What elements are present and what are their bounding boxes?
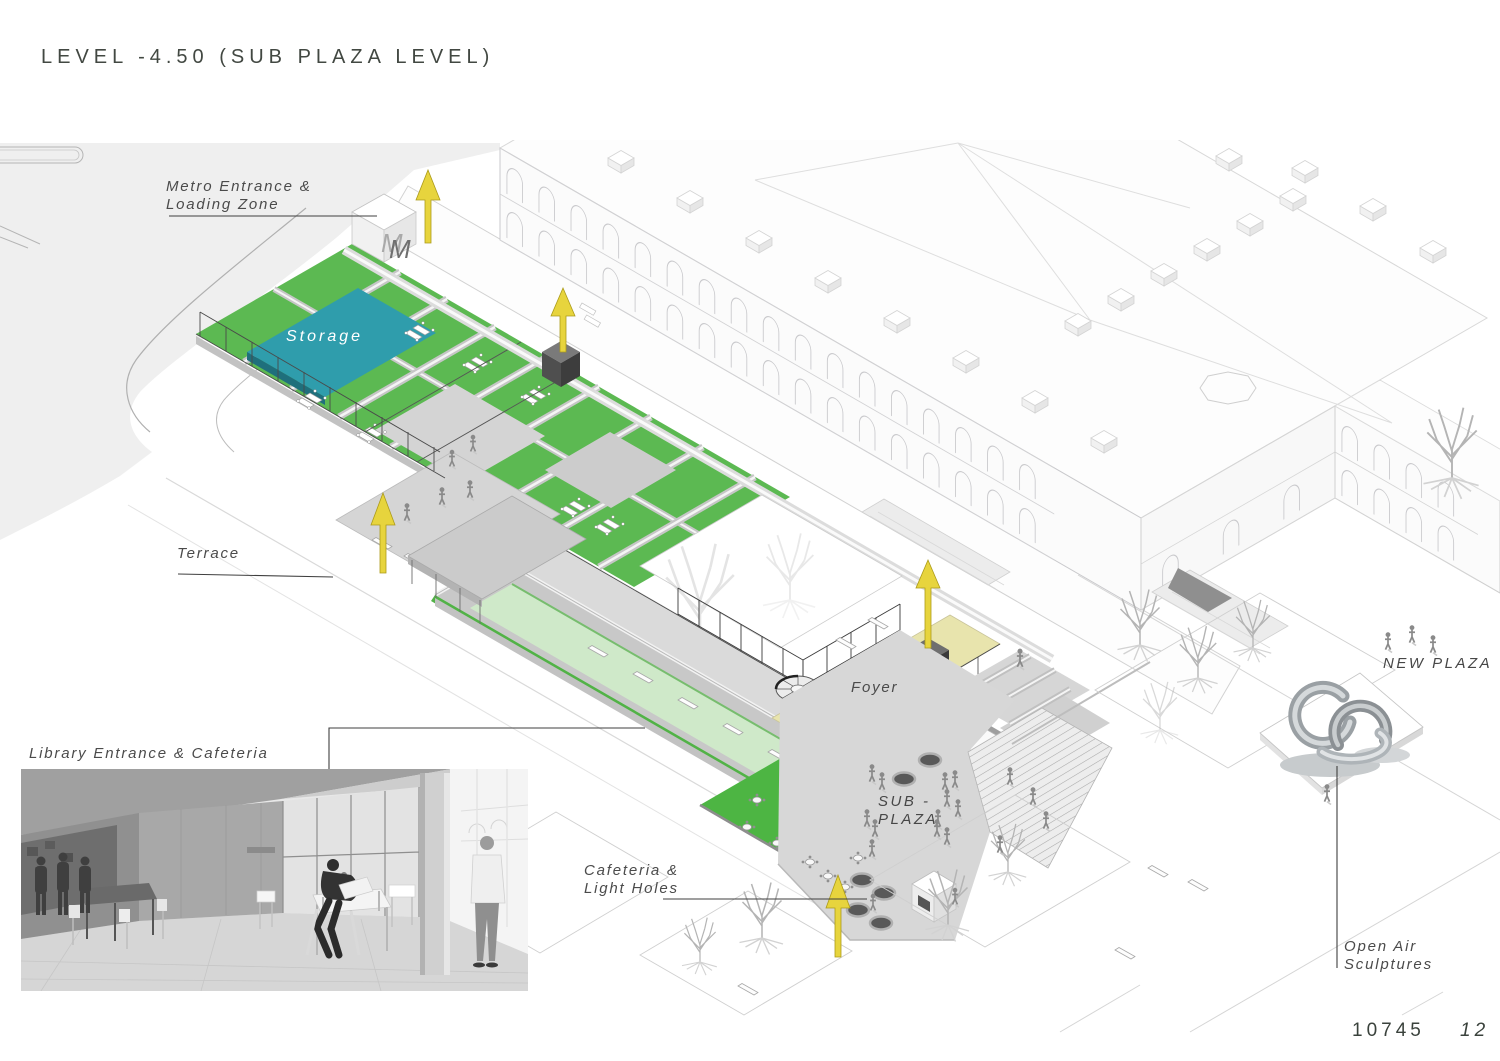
leader-terrace: [178, 574, 333, 577]
presentation-board: MAT M M: [0, 0, 1500, 1061]
label-library-entrance: Library Entrance & Cafeteria: [29, 745, 269, 763]
label-storage: Storage: [286, 328, 363, 346]
library-photo-illustration: [21, 769, 528, 991]
label-sub-plaza: SUB - PLAZA: [878, 793, 938, 829]
entry-code: 10745: [1352, 1020, 1425, 1042]
leader-library: [329, 728, 645, 769]
metro-logo-front: M: [389, 234, 411, 264]
label-terrace: Terrace: [177, 545, 240, 563]
library-entrance-photo: [21, 769, 528, 991]
photo-column: [420, 773, 450, 975]
sheet-number: 12: [1460, 1020, 1489, 1042]
page-title: LEVEL -4.50 (SUB PLAZA LEVEL): [41, 46, 494, 69]
label-cafeteria: Cafeteria & Light Holes: [584, 862, 679, 898]
label-foyer: Foyer: [851, 679, 898, 697]
label-new-plaza: NEW PLAZA: [1383, 655, 1492, 673]
roof-octagon: [1200, 372, 1256, 404]
label-open-air-sculptures: Open Air Sculptures: [1344, 938, 1433, 974]
label-metro-entrance: Metro Entrance & Loading Zone: [166, 178, 312, 214]
